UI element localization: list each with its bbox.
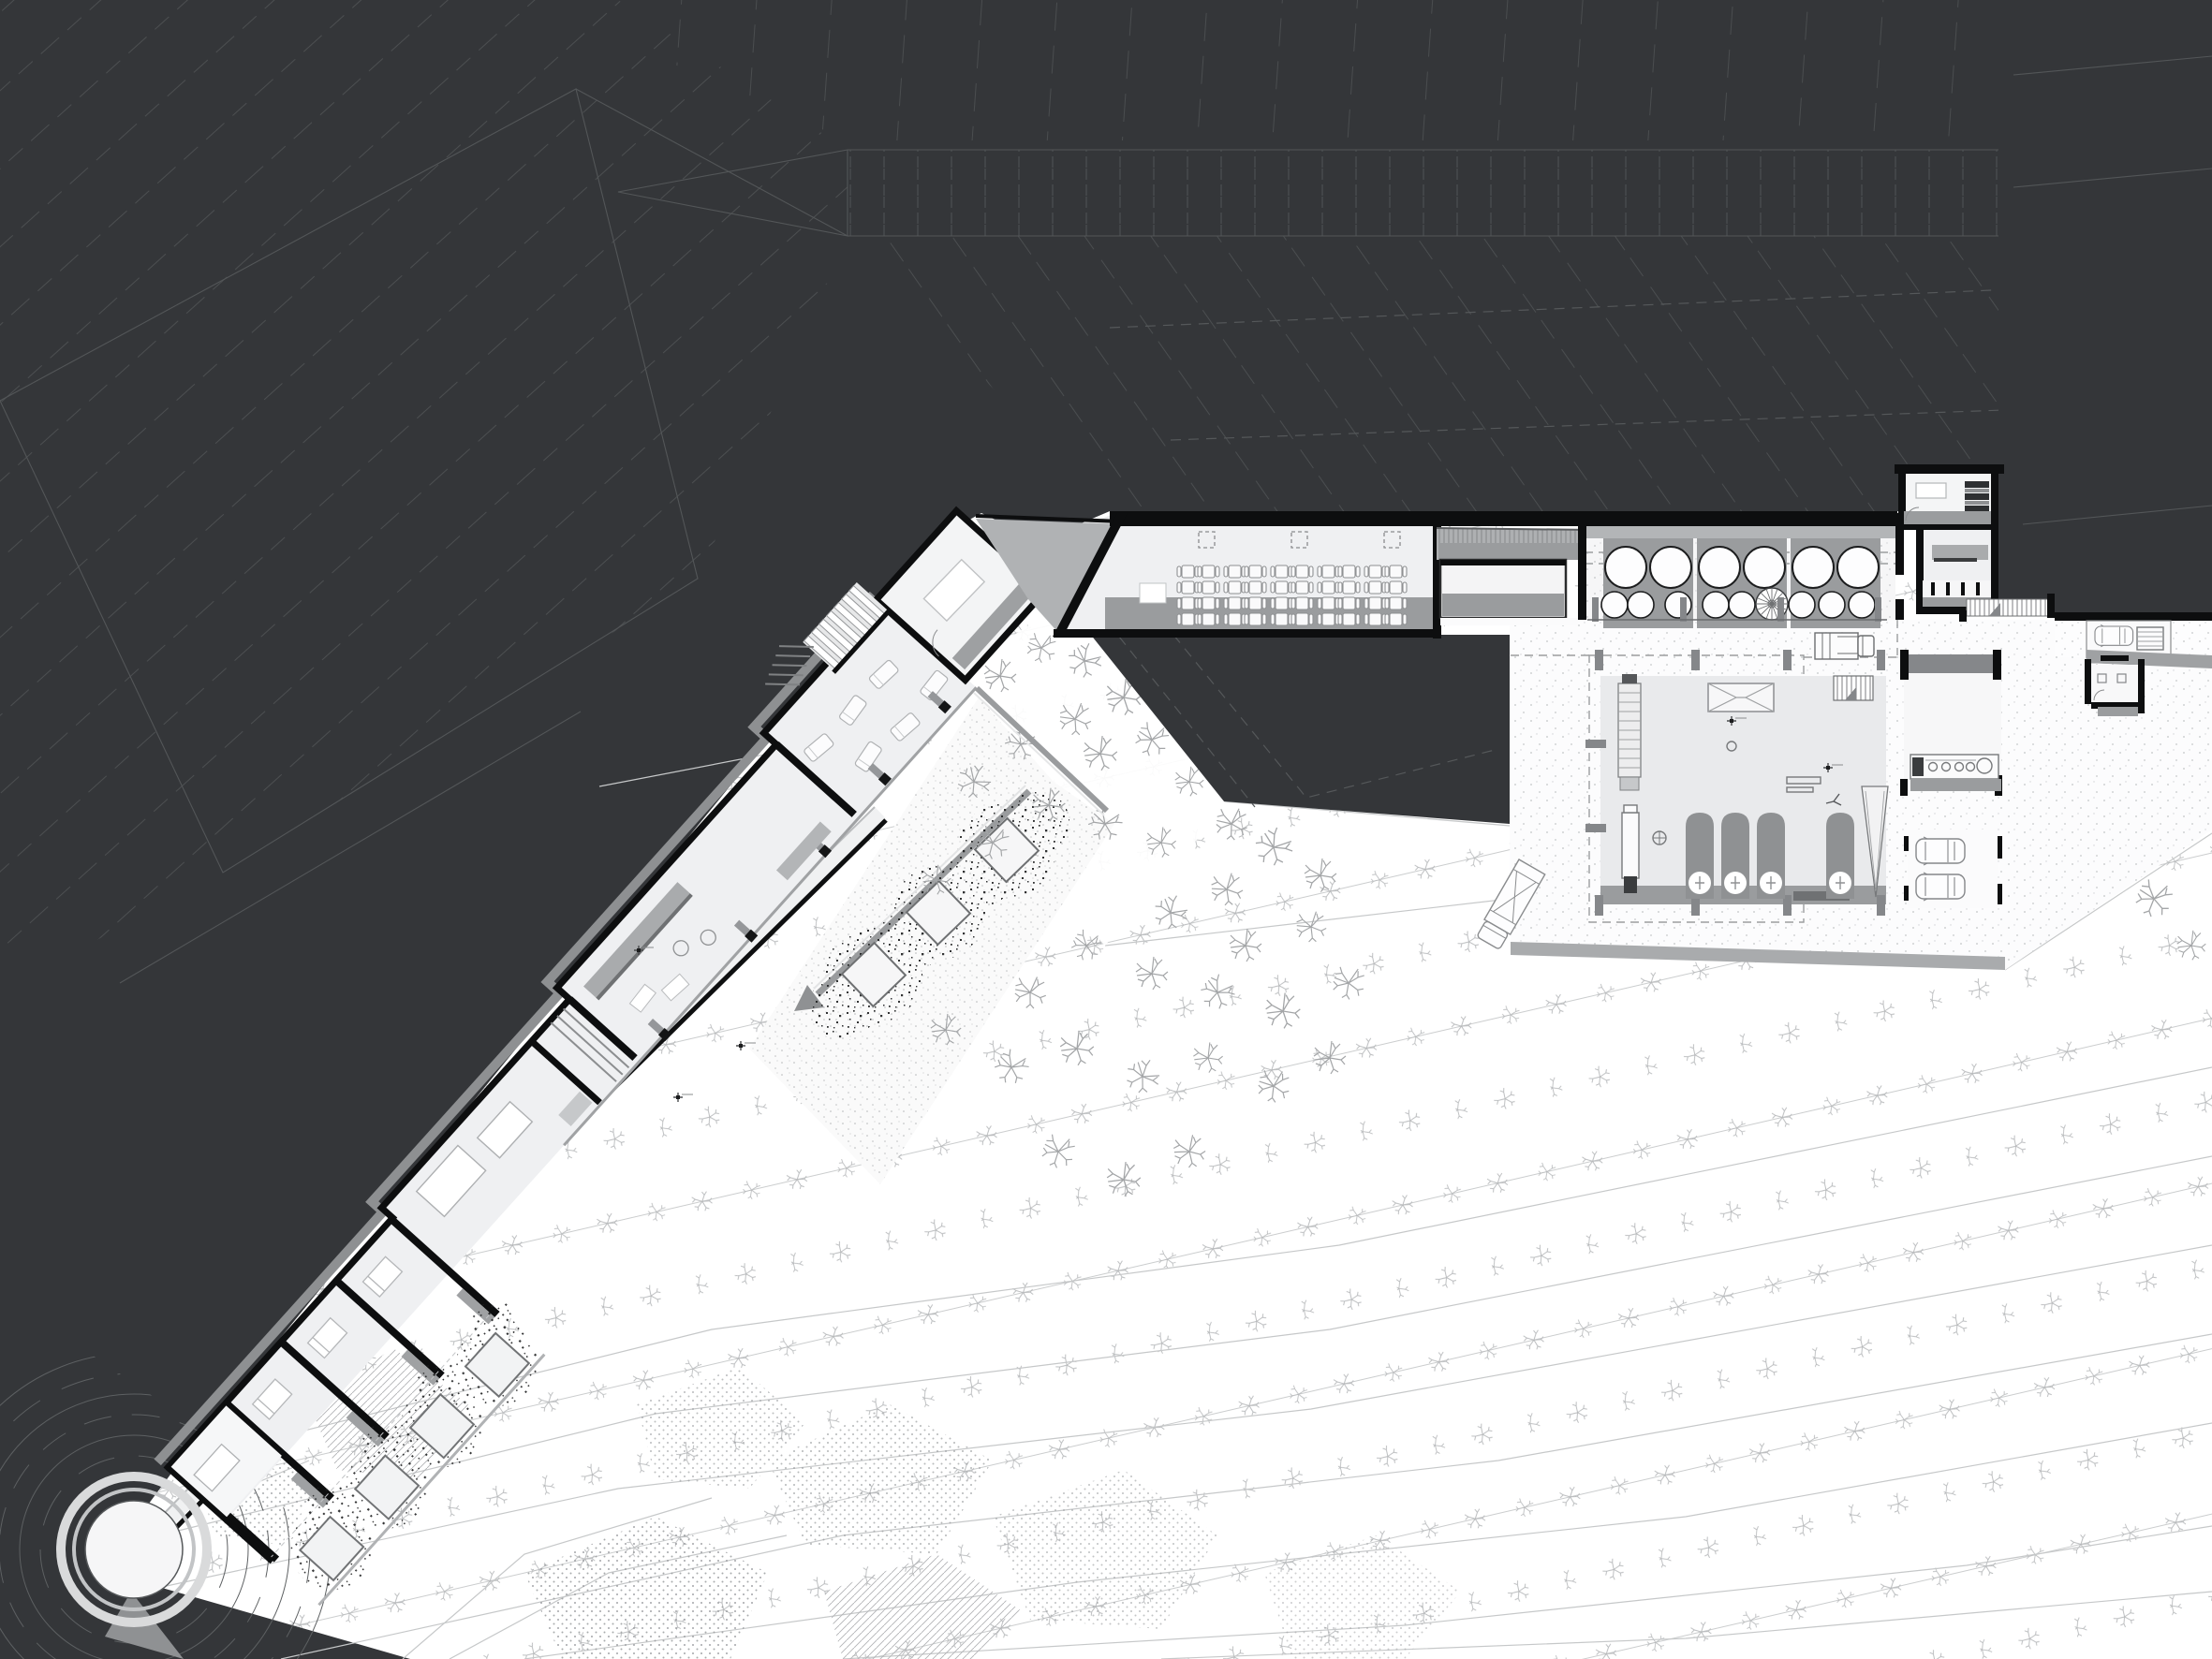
tank-hall [1578,513,1904,628]
winery-site-plan [0,0,2212,1659]
bottling-room [1900,650,2002,796]
servery [1440,543,1581,625]
plaza-circle [85,1501,183,1598]
press-conveyor [1618,674,1641,790]
shelving [1965,481,1989,512]
dark-right [1998,0,2212,614]
sorting-table [1708,683,1774,712]
pallet-jack [1622,805,1639,893]
parcel-rows-top [618,0,2212,140]
roller-cart [1653,831,1666,844]
truck-top [1815,633,1874,659]
staff-parking [1904,829,2002,908]
counter [1932,545,1988,560]
parked-car [1916,873,1965,901]
tank-hall-west-wall [1578,521,1586,620]
small-tanks [1601,592,1875,618]
site-wall [2055,612,2212,621]
bottling-line [1910,755,1998,779]
garage-car [2095,624,2133,646]
parked-car [1916,837,1965,865]
tank-hall-east-wall-lower [1895,599,1904,620]
hall-stair [1834,676,1873,700]
restaurant-south-wall [1054,629,1440,638]
sideboard [1140,583,1166,603]
lab-table [1916,483,1946,498]
tank-hall-top-band [1585,526,1895,538]
crate [2137,627,2163,650]
restaurant-top-wall [1110,511,1897,526]
